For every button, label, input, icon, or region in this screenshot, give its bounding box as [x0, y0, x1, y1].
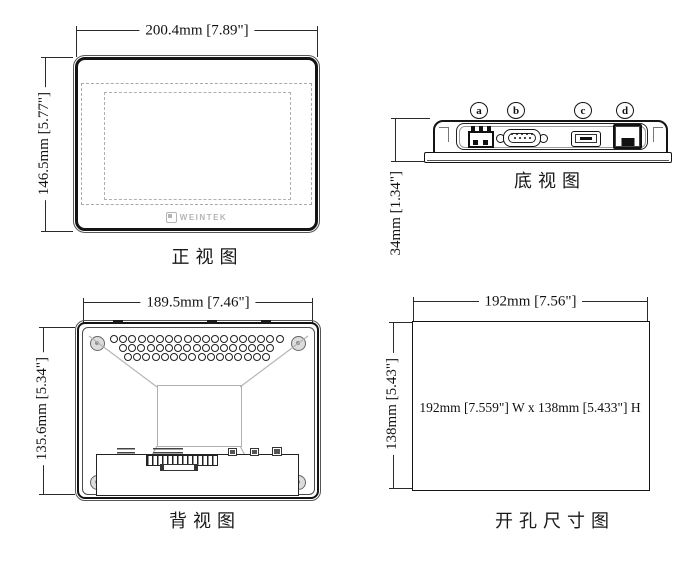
serial-db9-port — [496, 129, 548, 147]
port-callout-b: b — [507, 102, 525, 119]
vent-hole — [230, 335, 238, 343]
cutout-size-text: 192mm [7.559"] W x 138mm [5.433"] H — [412, 400, 648, 416]
vent-hole — [193, 335, 201, 343]
vent-hole — [193, 344, 201, 352]
front-width-dim-text: 200.4mm [7.89"] — [139, 22, 254, 39]
rj45-contacts — [621, 138, 634, 146]
back-width-dimension: 189.5mm [7.46"] — [83, 298, 313, 307]
db9-pins — [504, 133, 540, 139]
extension-line — [39, 327, 75, 328]
back-width-dim-text: 189.5mm [7.46"] — [140, 294, 255, 311]
vent-hole — [165, 344, 173, 352]
cutout-view-label: 开孔尺寸图 — [455, 507, 655, 533]
extension-line — [39, 494, 75, 495]
usb-label-icon — [228, 448, 237, 456]
bottom-height-dim-text: 34mm [1.34"] — [388, 166, 405, 260]
vent-hole — [110, 335, 118, 343]
cutout-width-dim-text: 192mm [7.56"] — [479, 293, 583, 310]
vent-hole — [147, 344, 155, 352]
vent-hole — [170, 353, 178, 361]
info-label-mark — [153, 448, 183, 454]
weintek-logo-icon — [166, 212, 177, 223]
vent-hole — [248, 335, 256, 343]
vent-hole — [156, 335, 164, 343]
vent-hole — [124, 353, 132, 361]
vent-hole — [253, 353, 261, 361]
vent-hole — [239, 335, 247, 343]
usb-tongue — [580, 137, 592, 140]
cutout-height-dim-text: 138mm [5.43"] — [384, 353, 401, 455]
back-height-dim-text: 135.6mm [5.34"] — [34, 352, 51, 465]
vent-hole — [202, 344, 210, 352]
extension-line — [41, 57, 73, 58]
dimension-drawing: 200.4mm [7.89"] 146.5mm [5.77"] WEINTEK … — [0, 0, 692, 572]
vent-hole — [147, 335, 155, 343]
extension-line — [389, 322, 412, 323]
brand-logo: WEINTEK — [78, 212, 315, 223]
display-area-dashline — [104, 92, 291, 200]
vent-hole — [202, 335, 210, 343]
ethernet-label-icon — [272, 447, 282, 456]
vent-hole — [161, 353, 169, 361]
usb2-label-icon — [250, 448, 259, 456]
usb-port — [571, 131, 601, 147]
vent-hole — [239, 344, 247, 352]
port-callout-a: a — [470, 102, 488, 119]
terminal-body — [468, 131, 494, 148]
front-view-label: 正视图 — [120, 243, 295, 269]
mount-recess-rect — [157, 385, 242, 447]
corner-screw-icon — [90, 336, 105, 351]
extension-line — [41, 231, 73, 232]
clip-slot — [113, 320, 123, 324]
vent-hole — [257, 344, 265, 352]
mounting-ear-right — [653, 127, 663, 142]
vent-hole — [156, 344, 164, 352]
corner-screw-icon — [291, 336, 306, 351]
back-view-label: 背视图 — [130, 507, 280, 533]
vent-hole — [152, 353, 160, 361]
clip-slot — [207, 320, 217, 324]
extension-line — [317, 26, 318, 57]
front-bezel-edge — [424, 152, 672, 163]
vent-hole — [184, 335, 192, 343]
front-panel-outline: WEINTEK — [75, 57, 318, 231]
front-width-dimension: 200.4mm [7.89"] — [76, 26, 318, 35]
front-height-dim-text: 146.5mm [5.77"] — [36, 87, 53, 200]
vent-hole — [119, 344, 127, 352]
port-callout-c: c — [574, 102, 592, 119]
extension-line — [391, 118, 430, 119]
port-callout-d: d — [616, 102, 634, 119]
vent-hole — [138, 335, 146, 343]
bottom-height-dimension — [391, 118, 400, 162]
clip-slot — [261, 320, 271, 324]
vent-hole — [198, 353, 206, 361]
vent-hole — [211, 344, 219, 352]
terminal-slot — [473, 140, 478, 145]
extension-line — [391, 161, 425, 162]
vent-hole — [244, 353, 252, 361]
db9-body — [503, 129, 541, 147]
terminal-slot — [483, 140, 488, 145]
io-connector-tab — [160, 464, 198, 471]
vent-hole — [276, 335, 284, 343]
cutout-width-dimension: 192mm [7.56"] — [413, 297, 648, 306]
vent-hole — [216, 353, 224, 361]
ethernet-rj45-port — [613, 124, 642, 149]
weintek-logo-text: WEINTEK — [180, 213, 227, 222]
power-label-mark — [117, 448, 135, 454]
vent-hole — [248, 344, 256, 352]
vent-hole — [262, 353, 270, 361]
bottom-view-label: 底视图 — [475, 167, 625, 193]
vent-hole — [207, 353, 215, 361]
extension-line — [389, 488, 412, 489]
power-terminal-port — [468, 126, 494, 148]
mounting-ear-left — [439, 127, 449, 142]
extension-line — [76, 26, 77, 57]
